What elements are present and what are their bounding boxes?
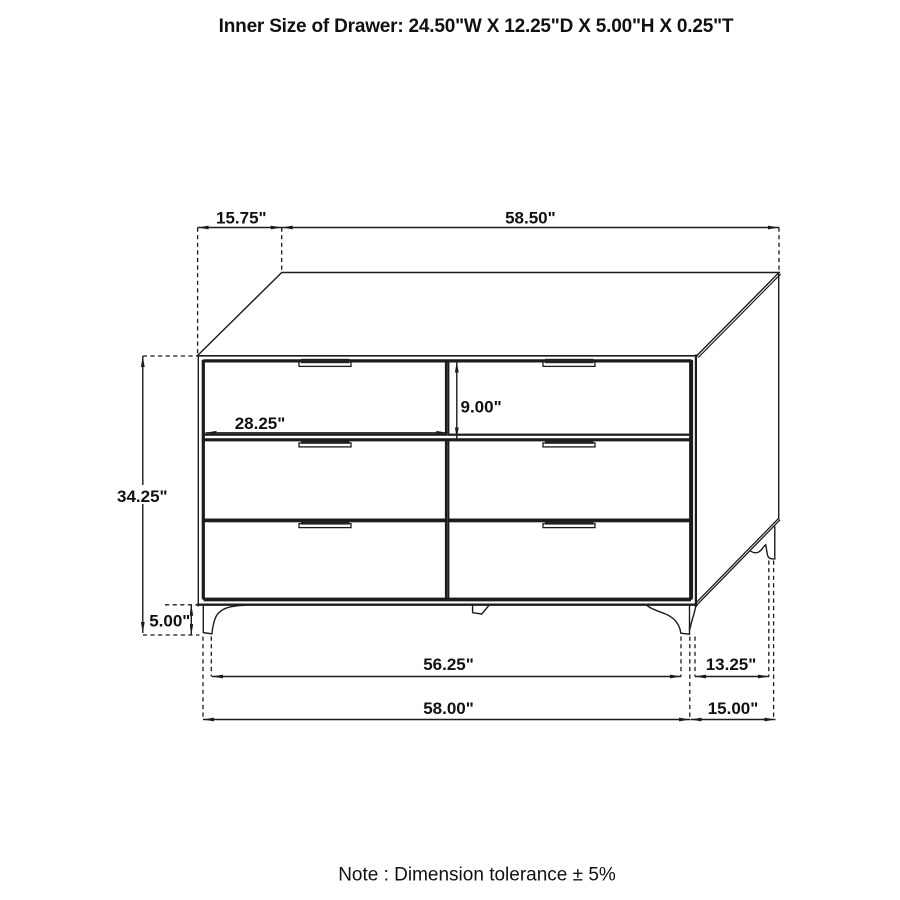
svg-text:Note : Dimension tolerance ±: Note : Dimension tolerance ± 5% bbox=[338, 865, 616, 886]
svg-text:15.00": 15.00" bbox=[708, 699, 759, 718]
svg-text:9.00": 9.00" bbox=[461, 398, 502, 417]
svg-text:28.25": 28.25" bbox=[235, 414, 286, 433]
svg-text:58.00": 58.00" bbox=[423, 699, 474, 718]
svg-text:56.25": 56.25" bbox=[423, 655, 474, 674]
svg-text:58.50": 58.50" bbox=[505, 208, 556, 227]
svg-text:15.75": 15.75" bbox=[216, 208, 267, 227]
svg-text:34.25": 34.25" bbox=[117, 487, 168, 506]
svg-text:13.25": 13.25" bbox=[706, 655, 757, 674]
svg-text:5.00": 5.00" bbox=[149, 612, 190, 631]
svg-text:Inner Size of Drawer: 24.50"W: Inner Size of Drawer: 24.50"W X 12.25"D … bbox=[219, 16, 734, 37]
